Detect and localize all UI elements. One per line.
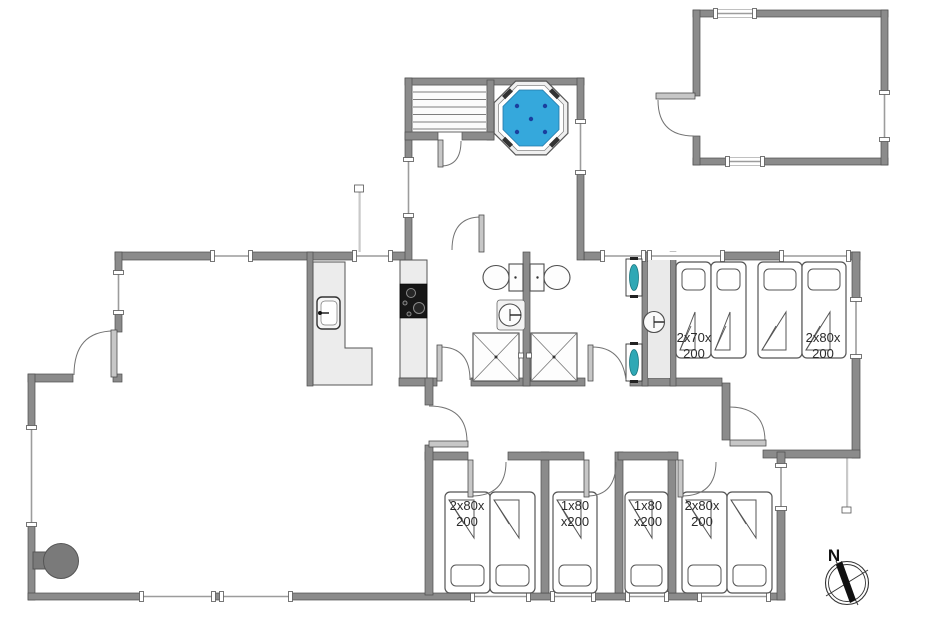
floorplan-drawing: 2x70x 200 2x80x 200 2x80x 200 1x80 x200 … xyxy=(0,0,930,620)
wall-segment xyxy=(852,356,860,458)
bathroom-right-door xyxy=(588,345,626,381)
wall-segment xyxy=(405,78,584,85)
shower-handle-right xyxy=(527,353,532,358)
vent-unit-teal-oval xyxy=(630,265,639,291)
bed-label-top-a2: 200 xyxy=(683,346,705,361)
window xyxy=(576,120,586,175)
bed xyxy=(758,262,802,358)
sauna xyxy=(412,85,487,132)
wall-segment xyxy=(666,593,700,600)
wall-segment xyxy=(693,10,700,96)
wall-segment xyxy=(722,383,730,440)
bed-label-bottom-4: 2x80x xyxy=(685,498,720,513)
bedroom2-door xyxy=(584,460,616,497)
wall-segment xyxy=(28,374,35,428)
screen-line-cap xyxy=(842,507,851,513)
wall-segment xyxy=(487,80,494,140)
toilet-button-right xyxy=(536,276,538,278)
window xyxy=(220,592,293,602)
vent-unit-upper xyxy=(626,257,642,298)
vent-unit-lower xyxy=(626,342,642,383)
wall-segment xyxy=(615,452,623,593)
wall-segment xyxy=(593,593,628,600)
wall-segment xyxy=(777,508,785,600)
bed-label-bottom-2b: x200 xyxy=(561,514,589,529)
window xyxy=(211,251,253,262)
sauna-door xyxy=(438,140,461,167)
wall-segment xyxy=(852,252,860,300)
spa-room-door xyxy=(452,215,484,252)
wall-segment xyxy=(115,312,122,332)
bed-label-bottom-3b: x200 xyxy=(634,514,662,529)
window xyxy=(780,251,851,262)
floorplan-page: 2x70x 200 2x80x 200 2x80x 200 1x80 x200 … xyxy=(0,0,930,620)
wall-segment xyxy=(670,252,676,386)
bed-label-bottom-1b: 200 xyxy=(456,514,478,529)
vent-unit-teal-oval-2 xyxy=(630,350,639,376)
toilet-bowl-right xyxy=(544,266,570,290)
compass: N xyxy=(826,546,869,605)
bed xyxy=(711,262,746,358)
window xyxy=(851,298,862,359)
wall-segment xyxy=(290,593,473,600)
wall-segment xyxy=(881,139,888,165)
screen-line xyxy=(846,458,848,510)
drain-line xyxy=(359,190,361,252)
wood-stove xyxy=(33,544,79,579)
window xyxy=(726,157,765,167)
wall-segment xyxy=(528,593,553,600)
wall-segment xyxy=(250,252,355,260)
wall-segment xyxy=(307,252,313,386)
wall-segment xyxy=(425,378,433,405)
window xyxy=(880,91,890,142)
window xyxy=(648,251,725,262)
bed xyxy=(490,492,535,593)
bed-label-bottom-1: 2x80x xyxy=(450,498,485,513)
wall-segment xyxy=(618,452,678,460)
bed-label-top-b: 2x80x xyxy=(806,330,841,345)
wall-segment xyxy=(881,10,888,93)
window xyxy=(714,9,757,19)
utility-room xyxy=(626,257,670,383)
kitchen xyxy=(313,260,427,385)
bed-label-top-a: 2x70x xyxy=(677,330,712,345)
wall-segment xyxy=(28,593,142,600)
wall-segment xyxy=(462,132,494,140)
wall-segment xyxy=(405,132,438,140)
shower-handle-left xyxy=(519,353,524,358)
wall-segment xyxy=(577,172,584,260)
kitchen-island-counter xyxy=(400,260,427,378)
wall-segment xyxy=(577,78,584,122)
wall-segment xyxy=(508,452,584,460)
window xyxy=(114,271,124,315)
bathroom-left-door xyxy=(437,345,470,381)
bed-label-bottom-4b: 200 xyxy=(691,514,713,529)
hall-west-door xyxy=(429,406,468,447)
wall-segment xyxy=(405,215,412,260)
wall-segment xyxy=(541,452,549,593)
window xyxy=(140,592,216,602)
hot-tub xyxy=(494,81,568,155)
window xyxy=(353,251,393,262)
bed xyxy=(727,492,772,593)
wall-segment xyxy=(722,252,782,260)
annex-door xyxy=(656,93,695,136)
wall-segment xyxy=(693,158,888,165)
toilet-bowl-left xyxy=(483,266,509,290)
window xyxy=(776,464,787,511)
wall-segment xyxy=(115,252,122,273)
drain-line-cap xyxy=(355,185,364,192)
compass-north-label: N xyxy=(828,546,840,565)
wall-segment xyxy=(668,452,676,593)
window xyxy=(404,158,414,218)
wall-segment xyxy=(693,136,700,165)
wall-segment xyxy=(405,78,412,160)
hall-east-door xyxy=(729,407,766,446)
wall-segment xyxy=(115,252,213,260)
bed-label-bottom-2: 1x80 xyxy=(561,498,589,513)
wood-stove-body xyxy=(44,544,79,579)
entrance-door xyxy=(74,330,117,377)
toilet-button-left xyxy=(514,276,516,278)
bed-label-bottom-3: 1x80 xyxy=(634,498,662,513)
bed-label-top-b2: 200 xyxy=(812,346,834,361)
window xyxy=(27,426,37,527)
wall-segment xyxy=(425,445,433,595)
